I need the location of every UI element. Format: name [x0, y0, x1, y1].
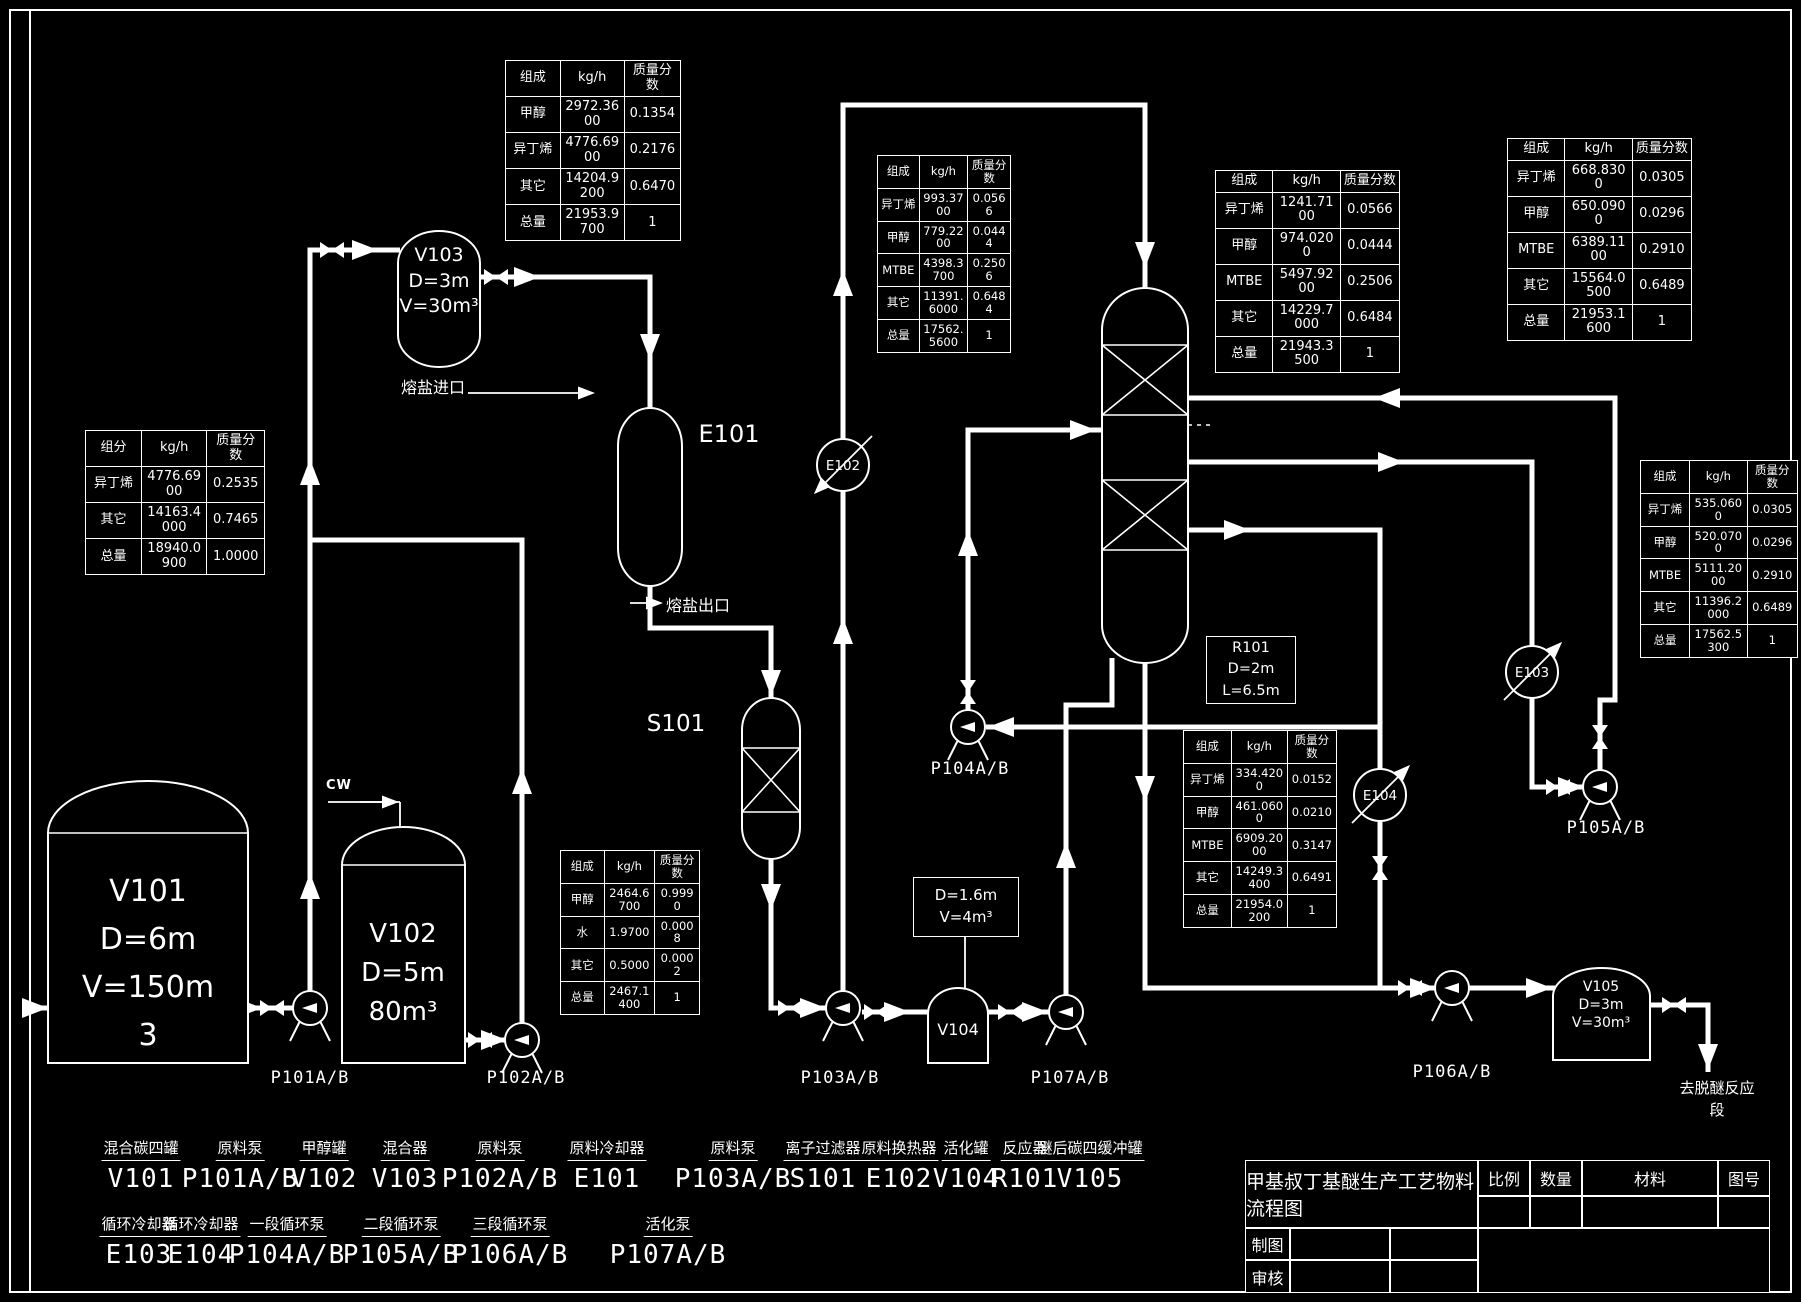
valve-icon	[1592, 725, 1608, 749]
table-cell: 974.0200	[1273, 228, 1340, 264]
table-cell: 0.0566	[1340, 192, 1399, 228]
table-cell: 总量	[1641, 624, 1690, 657]
table-cell: 1	[624, 205, 680, 241]
exchanger-e101-label: E101	[699, 417, 760, 452]
title-block-empty-cell	[1530, 1196, 1582, 1228]
exchanger-e103-label: E103	[1515, 664, 1549, 684]
pump-p105-symbol	[1580, 770, 1620, 820]
legend-item: 原料泵P103A/B	[675, 1137, 792, 1194]
table-cell: 总量	[1216, 336, 1273, 372]
legend-item: 混合器V103	[372, 1137, 439, 1194]
table-cell: 质量分数	[1747, 461, 1798, 494]
table-cell: 15564.0500	[1565, 268, 1632, 304]
legend-item: 三段循环泵P106A/B	[452, 1213, 569, 1270]
table-cell: 2467.1400	[604, 982, 655, 1015]
legend-item: 活化泵P107A/B	[610, 1213, 727, 1270]
table-cell: 其它	[1216, 300, 1273, 336]
pump-p103-label: P103A/B	[801, 1066, 880, 1091]
table-cell: 2972.3600	[560, 97, 624, 133]
table-cell: 0.2910	[1747, 559, 1798, 592]
table-cell: 甲醇	[1216, 228, 1273, 264]
table-cell: 1.0000	[207, 539, 265, 575]
table-cell: 甲醇	[561, 883, 605, 916]
valve-icon	[998, 1004, 1022, 1020]
vessels	[48, 231, 1650, 1063]
table-cell: 质量分数	[968, 156, 1011, 189]
table-cell: 0.0002	[655, 949, 700, 982]
table-cell: 总量	[506, 205, 561, 241]
table-cell: 其它	[86, 503, 142, 539]
table-cell: 其它	[1184, 862, 1232, 895]
table-cell: 0.0152	[1287, 763, 1336, 796]
molten-salt-outlet-label: 熔盐出口	[666, 594, 730, 617]
table-cell: kg/h	[141, 431, 207, 467]
table-cell: 535.0600	[1690, 493, 1747, 526]
table-cell: 14229.7000	[1273, 300, 1340, 336]
table-cell: 甲醇	[1508, 196, 1565, 232]
table-cell: 组分	[86, 431, 142, 467]
legend-item: 醚后碳四缓冲罐V105	[1035, 1137, 1144, 1194]
table-cell: 1	[1632, 304, 1691, 340]
stream-table-left-feed: 组分kg/h质量分数异丁烯4776.69000.2535其它14163.4000…	[85, 430, 265, 575]
table-cell: 0.9990	[655, 883, 700, 916]
table-cell: kg/h	[1565, 139, 1632, 161]
table-cell: 11396.2000	[1690, 592, 1747, 625]
table-cell: 21954.0200	[1231, 894, 1287, 927]
table-cell: 0.2176	[624, 133, 680, 169]
table-cell: 0.0305	[1747, 493, 1798, 526]
table-cell: 组成	[1508, 139, 1565, 161]
table-cell: 异丁烯	[506, 133, 561, 169]
legend-item: 一段循环泵P104A/B	[229, 1213, 346, 1270]
valve-icon	[1372, 856, 1388, 880]
legend-item: 原料冷却器E101	[567, 1137, 646, 1194]
table-cell: 0.2506	[1340, 264, 1399, 300]
pump-p102-label: P102A/B	[487, 1066, 566, 1091]
legend-item: 甲醇罐V102	[291, 1137, 358, 1194]
table-cell: 异丁烯	[1508, 160, 1565, 196]
table-cell: 甲醇	[1641, 526, 1690, 559]
filter-s101-label: S101	[647, 708, 706, 741]
table-cell: 0.5000	[604, 949, 655, 982]
table-cell: 0.6489	[1747, 592, 1798, 625]
cooling-water-label: CW	[326, 777, 352, 796]
table-cell: 2464.6700	[604, 883, 655, 916]
table-cell: 14249.3400	[1231, 862, 1287, 895]
vessel-v101-label: V101 D=6m V=150m 3	[82, 868, 214, 1060]
table-cell: 0.0305	[1632, 160, 1691, 196]
table-cell: 组成	[1184, 731, 1232, 764]
table-cell: 0.6491	[1287, 862, 1336, 895]
table-cell: 17562.5600	[919, 319, 968, 352]
valve-icon	[484, 269, 508, 285]
table-cell: 其它	[1508, 268, 1565, 304]
table-cell: kg/h	[604, 851, 655, 884]
valve-icon	[778, 1000, 802, 1016]
table-cell: 0.0566	[968, 188, 1011, 221]
title-block-quantity-label: 数量	[1530, 1160, 1582, 1196]
title-block: 甲基叔丁基醚生产工艺物料流程图 比例 数量 材料 图号 制图 审核	[1245, 1160, 1770, 1293]
table-cell: 0.3147	[1287, 829, 1336, 862]
title-block-empty-cell	[1718, 1196, 1770, 1228]
table-cell: 0.6484	[968, 287, 1011, 320]
title-block-empty-cell	[1290, 1260, 1390, 1293]
legend-item: 原料泵P102A/B	[442, 1137, 559, 1194]
table-cell: 异丁烯	[1641, 493, 1690, 526]
table-cell: 11391.6000	[919, 287, 968, 320]
table-cell: 异丁烯	[878, 188, 920, 221]
table-cell: 甲醇	[1184, 796, 1232, 829]
title-block-empty-cell	[1390, 1260, 1478, 1293]
table-cell: 0.0296	[1632, 196, 1691, 232]
table-cell: 4776.6900	[141, 467, 207, 503]
table-cell: 0.2910	[1632, 232, 1691, 268]
table-cell: 质量分数	[624, 61, 680, 97]
table-cell: 1.9700	[604, 916, 655, 949]
table-cell: 0.0296	[1747, 526, 1798, 559]
table-cell: 甲醇	[506, 97, 561, 133]
stream-table-r101-bottom: 组成kg/h质量分数异丁烯334.42000.0152甲醇461.06000.0…	[1183, 730, 1337, 928]
legend-item: 离子过滤器S101	[783, 1137, 862, 1194]
table-cell: 1	[655, 982, 700, 1015]
title-block-drawingno-label: 图号	[1718, 1160, 1770, 1196]
table-cell: MTBE	[1216, 264, 1273, 300]
stream-table-top-center: 组成kg/h质量分数甲醇2972.36000.1354异丁烯4776.69000…	[505, 60, 681, 241]
table-cell: 993.3700	[919, 188, 968, 221]
exchanger-e102-label: E102	[826, 457, 860, 477]
title-block-drafter-label: 制图	[1245, 1228, 1290, 1260]
vessel-v104-spec-box: D=1.6m V=4m³	[913, 877, 1019, 937]
pump-p107-symbol	[1046, 995, 1086, 1045]
table-cell: 0.0444	[1340, 228, 1399, 264]
table-cell: 组成	[878, 156, 920, 189]
table-cell: kg/h	[1231, 731, 1287, 764]
table-cell: 水	[561, 916, 605, 949]
valve-icon	[864, 1004, 888, 1020]
table-cell: 0.6489	[1632, 268, 1691, 304]
table-cell: 0.6484	[1340, 300, 1399, 336]
table-cell: 520.0700	[1690, 526, 1747, 559]
table-cell: MTBE	[1641, 559, 1690, 592]
pfd-canvas: 组成kg/h质量分数甲醇2972.36000.1354异丁烯4776.69000…	[0, 0, 1801, 1302]
stream-table-r101-feed: 组成kg/h质量分数异丁烯1241.71000.0566甲醇974.02000.…	[1215, 170, 1400, 373]
pump-p106-label: P106A/B	[1413, 1060, 1492, 1085]
legend-item: 活化罐V104	[933, 1137, 1000, 1194]
table-cell: 总量	[86, 539, 142, 575]
table-cell: MTBE	[1184, 829, 1232, 862]
table-cell: 组成	[506, 61, 561, 97]
molten-salt-inlet-label: 熔盐进口	[401, 376, 465, 399]
table-cell: 18940.0900	[141, 539, 207, 575]
table-cell: 1	[1287, 894, 1336, 927]
valve-icon	[260, 1000, 284, 1016]
table-cell: 组成	[561, 851, 605, 884]
table-cell: 1241.7100	[1273, 192, 1340, 228]
vessel-v102-label: V102 D=5m 80m³	[361, 915, 445, 1032]
table-cell: 14204.9200	[560, 169, 624, 205]
title-block-empty-cell	[1390, 1228, 1478, 1260]
reactor-r101-spec-box: R101 D=2m L=6.5m	[1206, 636, 1296, 704]
table-cell: MTBE	[1508, 232, 1565, 268]
table-cell: 质量分数	[1340, 171, 1399, 193]
title-block-empty-cell	[1582, 1196, 1718, 1228]
drawing-title: 甲基叔丁基醚生产工艺物料流程图	[1245, 1160, 1478, 1228]
table-cell: 其它	[506, 169, 561, 205]
title-block-reviewer-label: 审核	[1245, 1260, 1290, 1293]
title-block-empty-cell	[1478, 1228, 1770, 1293]
table-cell: 4776.6900	[560, 133, 624, 169]
table-cell: 4398.3700	[919, 254, 968, 287]
table-cell: 质量分数	[655, 851, 700, 884]
valve-icon	[320, 242, 344, 258]
vessel-v104-label: V104	[937, 1018, 978, 1041]
table-cell: 0.0008	[655, 916, 700, 949]
table-cell: 779.2200	[919, 221, 968, 254]
stream-table-e102: 组成kg/h质量分数异丁烯993.37000.0566甲醇779.22000.0…	[877, 155, 1011, 353]
table-cell: 0.0444	[968, 221, 1011, 254]
pump-p104-symbol	[948, 710, 988, 760]
table-cell: 异丁烯	[86, 467, 142, 503]
table-cell: 总量	[878, 319, 920, 352]
table-cell: 21953.9700	[560, 205, 624, 241]
table-cell: 17562.5300	[1690, 624, 1747, 657]
valve-icon	[1398, 980, 1422, 996]
table-cell: 质量分数	[1632, 139, 1691, 161]
vessel-v103-label: V103 D=3m V=30m³	[399, 243, 478, 320]
table-cell: kg/h	[1690, 461, 1747, 494]
table-cell: 1	[968, 319, 1011, 352]
stream-table-methanol-feed: 组成kg/h质量分数甲醇2464.67000.9990水1.97000.0008…	[560, 850, 700, 1015]
vessel-e101-shape	[618, 408, 682, 586]
title-block-scale-label: 比例	[1478, 1160, 1530, 1196]
vessel-v105-label: V105 D=3m V=30m³	[1572, 978, 1630, 1033]
table-cell: 668.8300	[1565, 160, 1632, 196]
table-cell: 0.6470	[624, 169, 680, 205]
title-block-empty-cell	[1290, 1228, 1390, 1260]
table-cell: 5111.2000	[1690, 559, 1747, 592]
table-cell: 异丁烯	[1184, 763, 1232, 796]
table-cell: 6389.1100	[1565, 232, 1632, 268]
to-deetherification-label: 去脱醚反应段	[1675, 1078, 1759, 1122]
table-cell: 组成	[1216, 171, 1273, 193]
table-cell: 其它	[1641, 592, 1690, 625]
pump-p104-label: P104A/B	[931, 757, 1010, 782]
table-cell: 0.2535	[207, 467, 265, 503]
valve-icon	[1546, 779, 1570, 795]
legend-item: 原料泵P101A/B	[182, 1137, 299, 1194]
table-cell: 总量	[1184, 894, 1232, 927]
valve-icon	[468, 1032, 492, 1048]
pump-p105-label: P105A/B	[1567, 816, 1646, 841]
table-cell: 总量	[1508, 304, 1565, 340]
table-cell: 334.4200	[1231, 763, 1287, 796]
legend-item: 混合碳四罐V101	[101, 1137, 180, 1194]
table-cell: 0.7465	[207, 503, 265, 539]
table-cell: 总量	[561, 982, 605, 1015]
title-block-material-label: 材料	[1582, 1160, 1718, 1196]
title-block-empty-cell	[1478, 1196, 1530, 1228]
table-cell: kg/h	[560, 61, 624, 97]
table-cell: kg/h	[919, 156, 968, 189]
table-cell: 质量分数	[1287, 731, 1336, 764]
table-cell: 21943.3500	[1273, 336, 1340, 372]
legend-item: 原料换热器E102	[859, 1137, 938, 1194]
table-cell: 21953.1600	[1565, 304, 1632, 340]
table-cell: kg/h	[1273, 171, 1340, 193]
pump-p101-label: P101A/B	[271, 1066, 350, 1091]
table-cell: 其它	[561, 949, 605, 982]
table-cell: 0.0210	[1287, 796, 1336, 829]
table-cell: 1	[1747, 624, 1798, 657]
table-cell: 6909.2000	[1231, 829, 1287, 862]
table-cell: 1	[1340, 336, 1399, 372]
legend-item: 二段循环泵P105A/B	[343, 1213, 460, 1270]
table-cell: 14163.4000	[141, 503, 207, 539]
flow-arrows	[34, 238, 1708, 1066]
pump-p101-symbol	[290, 991, 330, 1041]
table-cell: 质量分数	[207, 431, 265, 467]
table-cell: 0.1354	[624, 97, 680, 133]
pump-p107-label: P107A/B	[1031, 1066, 1110, 1091]
pump-p106-symbol	[1432, 971, 1472, 1021]
table-cell: MTBE	[878, 254, 920, 287]
exchanger-e104-label: E104	[1363, 787, 1397, 807]
process-pipes	[32, 105, 1708, 1072]
table-cell: 甲醇	[878, 221, 920, 254]
valve-icon	[960, 680, 976, 704]
table-cell: 461.0600	[1231, 796, 1287, 829]
stream-table-right-mid: 组成kg/h质量分数异丁烯535.06000.0305甲醇520.07000.0…	[1640, 460, 1798, 658]
table-cell: 650.0900	[1565, 196, 1632, 232]
table-cell: 其它	[878, 287, 920, 320]
vessel-s101-shape	[742, 698, 800, 859]
valve-icon	[1662, 997, 1686, 1013]
table-cell: 5497.9200	[1273, 264, 1340, 300]
table-cell: 组成	[1641, 461, 1690, 494]
pump-p103-symbol	[823, 991, 863, 1041]
table-cell: 0.2506	[968, 254, 1011, 287]
stream-table-top-right: 组成kg/h质量分数异丁烯668.83000.0305甲醇650.09000.0…	[1507, 138, 1692, 341]
table-cell: 异丁烯	[1216, 192, 1273, 228]
